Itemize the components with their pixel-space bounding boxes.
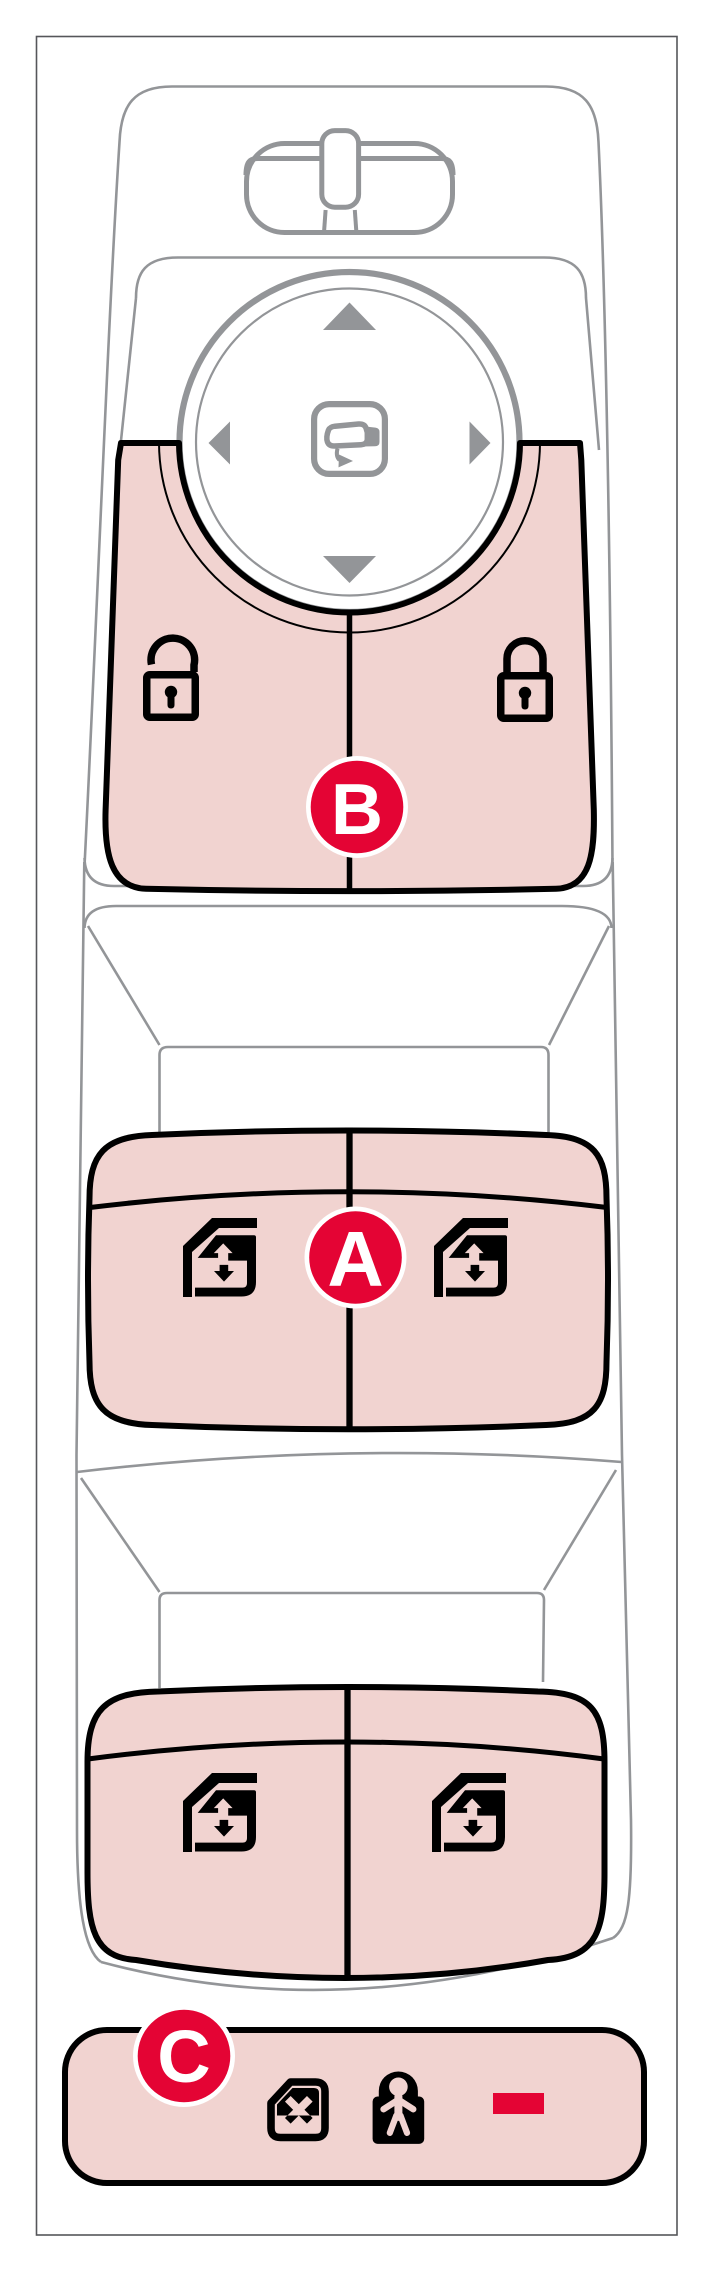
svg-text:A: A	[327, 1215, 383, 1303]
svg-text:C: C	[157, 2015, 210, 2098]
svg-text:B: B	[331, 770, 383, 850]
